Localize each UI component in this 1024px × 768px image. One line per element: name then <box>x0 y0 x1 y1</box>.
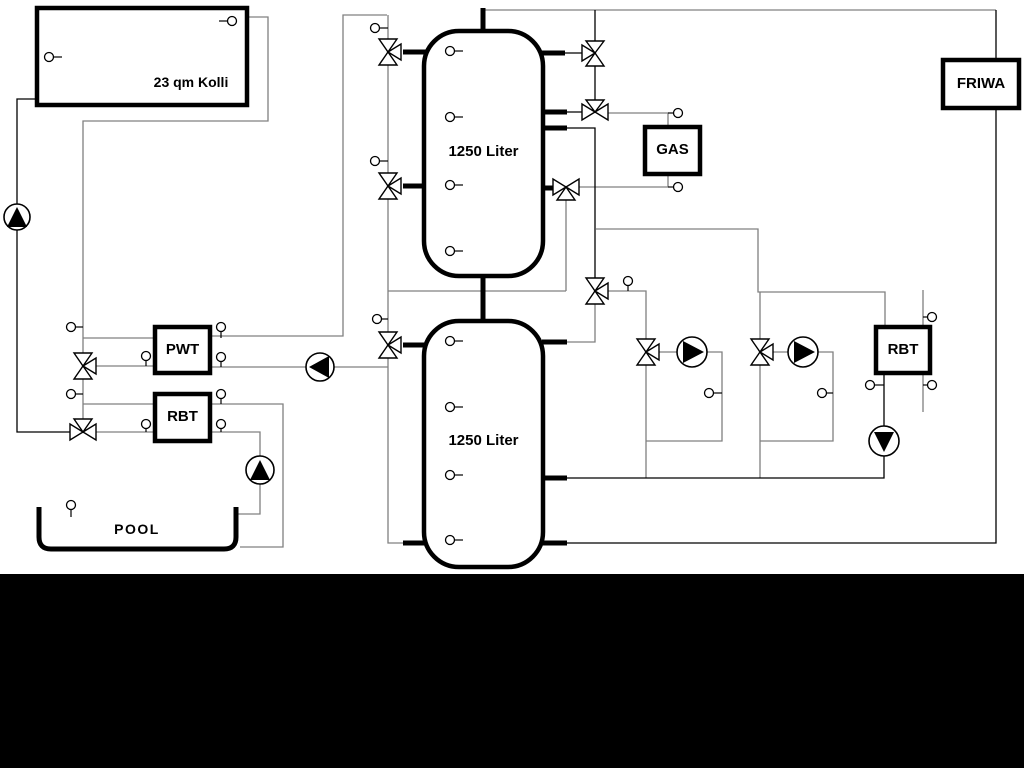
temperature-sensor-icon <box>67 501 76 518</box>
tank-bottom-label: 1250 Liter <box>424 433 543 449</box>
three-way-valve-icon <box>70 419 96 440</box>
solar-collector-box <box>37 8 247 105</box>
temperature-sensor-icon <box>371 157 389 166</box>
pipe-main-friwa <box>567 10 996 543</box>
pipe-solar-return <box>17 99 70 432</box>
temperature-sensor-icon <box>371 24 389 33</box>
three-way-valve-icon <box>379 173 401 199</box>
schematic-canvas: 23 qm Kolli 1250 Liter 1250 Liter GAS FR… <box>0 0 1024 768</box>
temperature-sensor-icon <box>142 352 151 367</box>
temperature-sensor-icon <box>668 109 683 118</box>
temperature-sensor-icon <box>142 420 151 433</box>
temperature-sensor-icon <box>217 353 226 368</box>
three-way-valve-icon <box>379 39 401 65</box>
bottom-black-band <box>0 574 1024 768</box>
rbt-right-label: RBT <box>876 342 930 358</box>
temperature-sensor-icon <box>668 183 683 192</box>
rbt-left-label: RBT <box>155 409 210 425</box>
gas-label: GAS <box>645 142 700 158</box>
pipe-valve-d-right <box>608 291 646 339</box>
pipe-main-return <box>567 373 884 478</box>
three-way-valve-icon <box>379 332 401 358</box>
pump-right-icon <box>677 337 707 367</box>
temperature-sensor-icon <box>624 277 633 292</box>
temperature-sensor-icon <box>67 390 84 399</box>
temperature-sensor-icon <box>217 390 226 405</box>
three-way-valve-icon <box>586 278 608 304</box>
temperature-sensor-icon <box>818 389 834 398</box>
temperature-sensor-icon <box>67 323 84 332</box>
pool-label: POOL <box>77 521 197 537</box>
friwa-label: FRIWA <box>943 76 1019 92</box>
three-way-valve-icon <box>74 353 96 379</box>
pump-left-icon <box>306 353 334 381</box>
temperature-sensor-icon <box>923 313 937 322</box>
three-way-valve-icon <box>637 339 659 365</box>
temperature-sensor-icon <box>217 420 226 433</box>
three-way-valve-icon <box>751 339 773 365</box>
pump-down-icon <box>869 426 899 456</box>
pipe-distribution <box>596 229 885 339</box>
pwt-label: PWT <box>155 342 210 358</box>
three-way-valve-icon <box>582 41 604 66</box>
pipe-valve-d-to-tank2 <box>567 304 595 342</box>
pipe-valve-chain-mid <box>567 128 595 278</box>
temperature-sensor-icon <box>923 381 937 390</box>
temperature-sensor-icon <box>866 381 885 390</box>
collector-label: 23 qm Kolli <box>131 74 251 90</box>
three-way-valve-icon <box>553 179 579 200</box>
pipe-valve-ports <box>565 53 583 112</box>
temperature-sensor-icon <box>373 315 389 324</box>
pump-up-icon <box>246 456 274 484</box>
pump-right-icon <box>788 337 818 367</box>
three-way-valve-icon <box>582 100 608 120</box>
tank-top-label: 1250 Liter <box>424 144 543 160</box>
component-boxes <box>37 8 1019 567</box>
pipe-tank-left-column <box>388 15 403 543</box>
temperature-sensor-icon <box>705 389 723 398</box>
pump-up-icon <box>4 204 30 230</box>
